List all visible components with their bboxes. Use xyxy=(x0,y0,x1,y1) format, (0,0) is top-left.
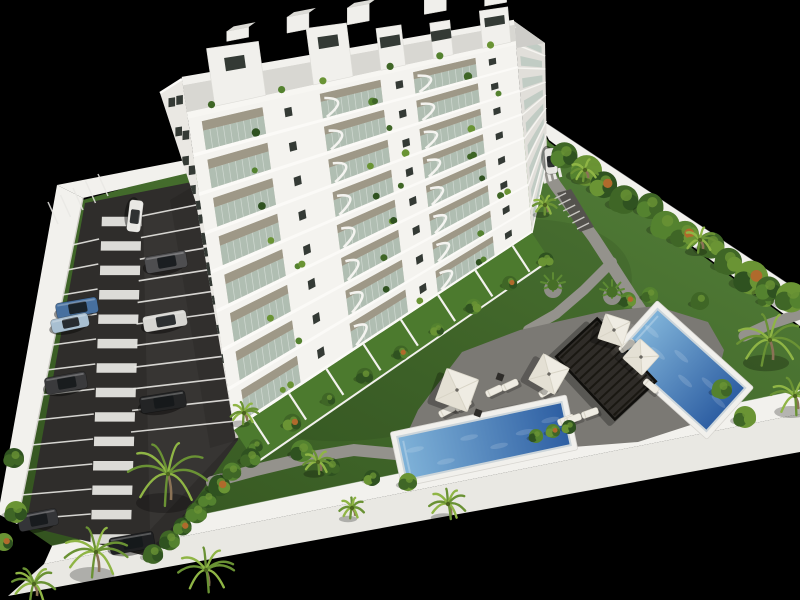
render-canvas xyxy=(0,0,800,600)
render-stage xyxy=(0,0,800,600)
